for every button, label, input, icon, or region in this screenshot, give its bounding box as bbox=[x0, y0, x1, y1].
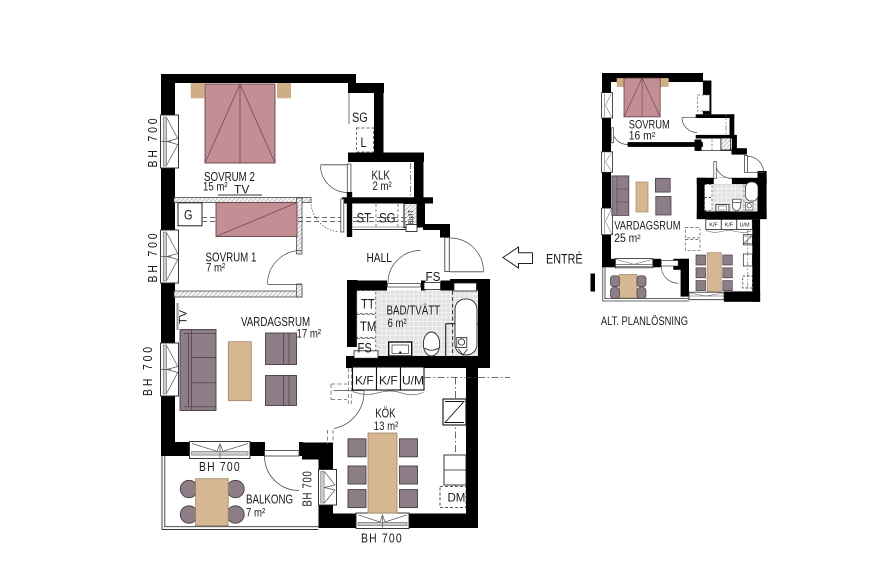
svg-text:BH 700: BH 700 bbox=[361, 531, 403, 545]
svg-text:BAD/TVÄTT: BAD/TVÄTT bbox=[387, 304, 441, 318]
svg-text:ST: ST bbox=[357, 211, 372, 226]
svg-text:G: G bbox=[184, 207, 192, 223]
svg-text:K/F: K/F bbox=[725, 223, 734, 229]
svg-text:BH 700: BH 700 bbox=[146, 231, 160, 283]
svg-text:2 m²: 2 m² bbox=[373, 180, 393, 193]
svg-text:HALL: HALL bbox=[367, 251, 393, 265]
svg-text:VARDAGSRUM: VARDAGSRUM bbox=[614, 219, 680, 232]
svg-text:SG: SG bbox=[379, 211, 396, 226]
svg-text:BH 700: BH 700 bbox=[199, 460, 241, 474]
svg-text:SG: SG bbox=[352, 110, 368, 126]
svg-text:EL/IT: EL/IT bbox=[409, 209, 415, 224]
svg-text:ALT. PLANLÖSNING: ALT. PLANLÖSNING bbox=[601, 314, 688, 328]
svg-text:16 m²: 16 m² bbox=[629, 130, 656, 143]
svg-text:K/F: K/F bbox=[709, 223, 718, 229]
svg-text:DM: DM bbox=[448, 493, 466, 505]
svg-text:7 m²: 7 m² bbox=[206, 262, 226, 275]
svg-text:K/F: K/F bbox=[355, 374, 374, 388]
svg-text:K/F: K/F bbox=[379, 374, 398, 388]
svg-text:FS: FS bbox=[358, 340, 372, 355]
svg-text:TV: TV bbox=[234, 183, 249, 197]
svg-text:BH 700: BH 700 bbox=[141, 344, 155, 396]
svg-text:7 m²: 7 m² bbox=[246, 507, 266, 520]
svg-text:6 m²: 6 m² bbox=[388, 317, 408, 330]
svg-text:TM: TM bbox=[360, 319, 376, 334]
svg-text:13 m²: 13 m² bbox=[374, 420, 399, 433]
svg-text:ENTRÉ: ENTRÉ bbox=[546, 250, 583, 267]
svg-text:U/M: U/M bbox=[739, 223, 750, 229]
svg-text:BH 700: BH 700 bbox=[301, 470, 315, 506]
svg-text:U/M: U/M bbox=[402, 374, 424, 388]
svg-text:25 m²: 25 m² bbox=[614, 233, 641, 246]
svg-text:L: L bbox=[361, 135, 367, 151]
svg-text:15 m²: 15 m² bbox=[203, 181, 228, 194]
svg-text:17 m²: 17 m² bbox=[297, 328, 322, 341]
svg-text:TT: TT bbox=[361, 296, 375, 311]
svg-text:BH 700: BH 700 bbox=[146, 116, 160, 168]
svg-text:BALKONG: BALKONG bbox=[246, 493, 293, 507]
svg-text:TV: TV bbox=[178, 309, 190, 324]
svg-text:FS: FS bbox=[426, 269, 441, 284]
